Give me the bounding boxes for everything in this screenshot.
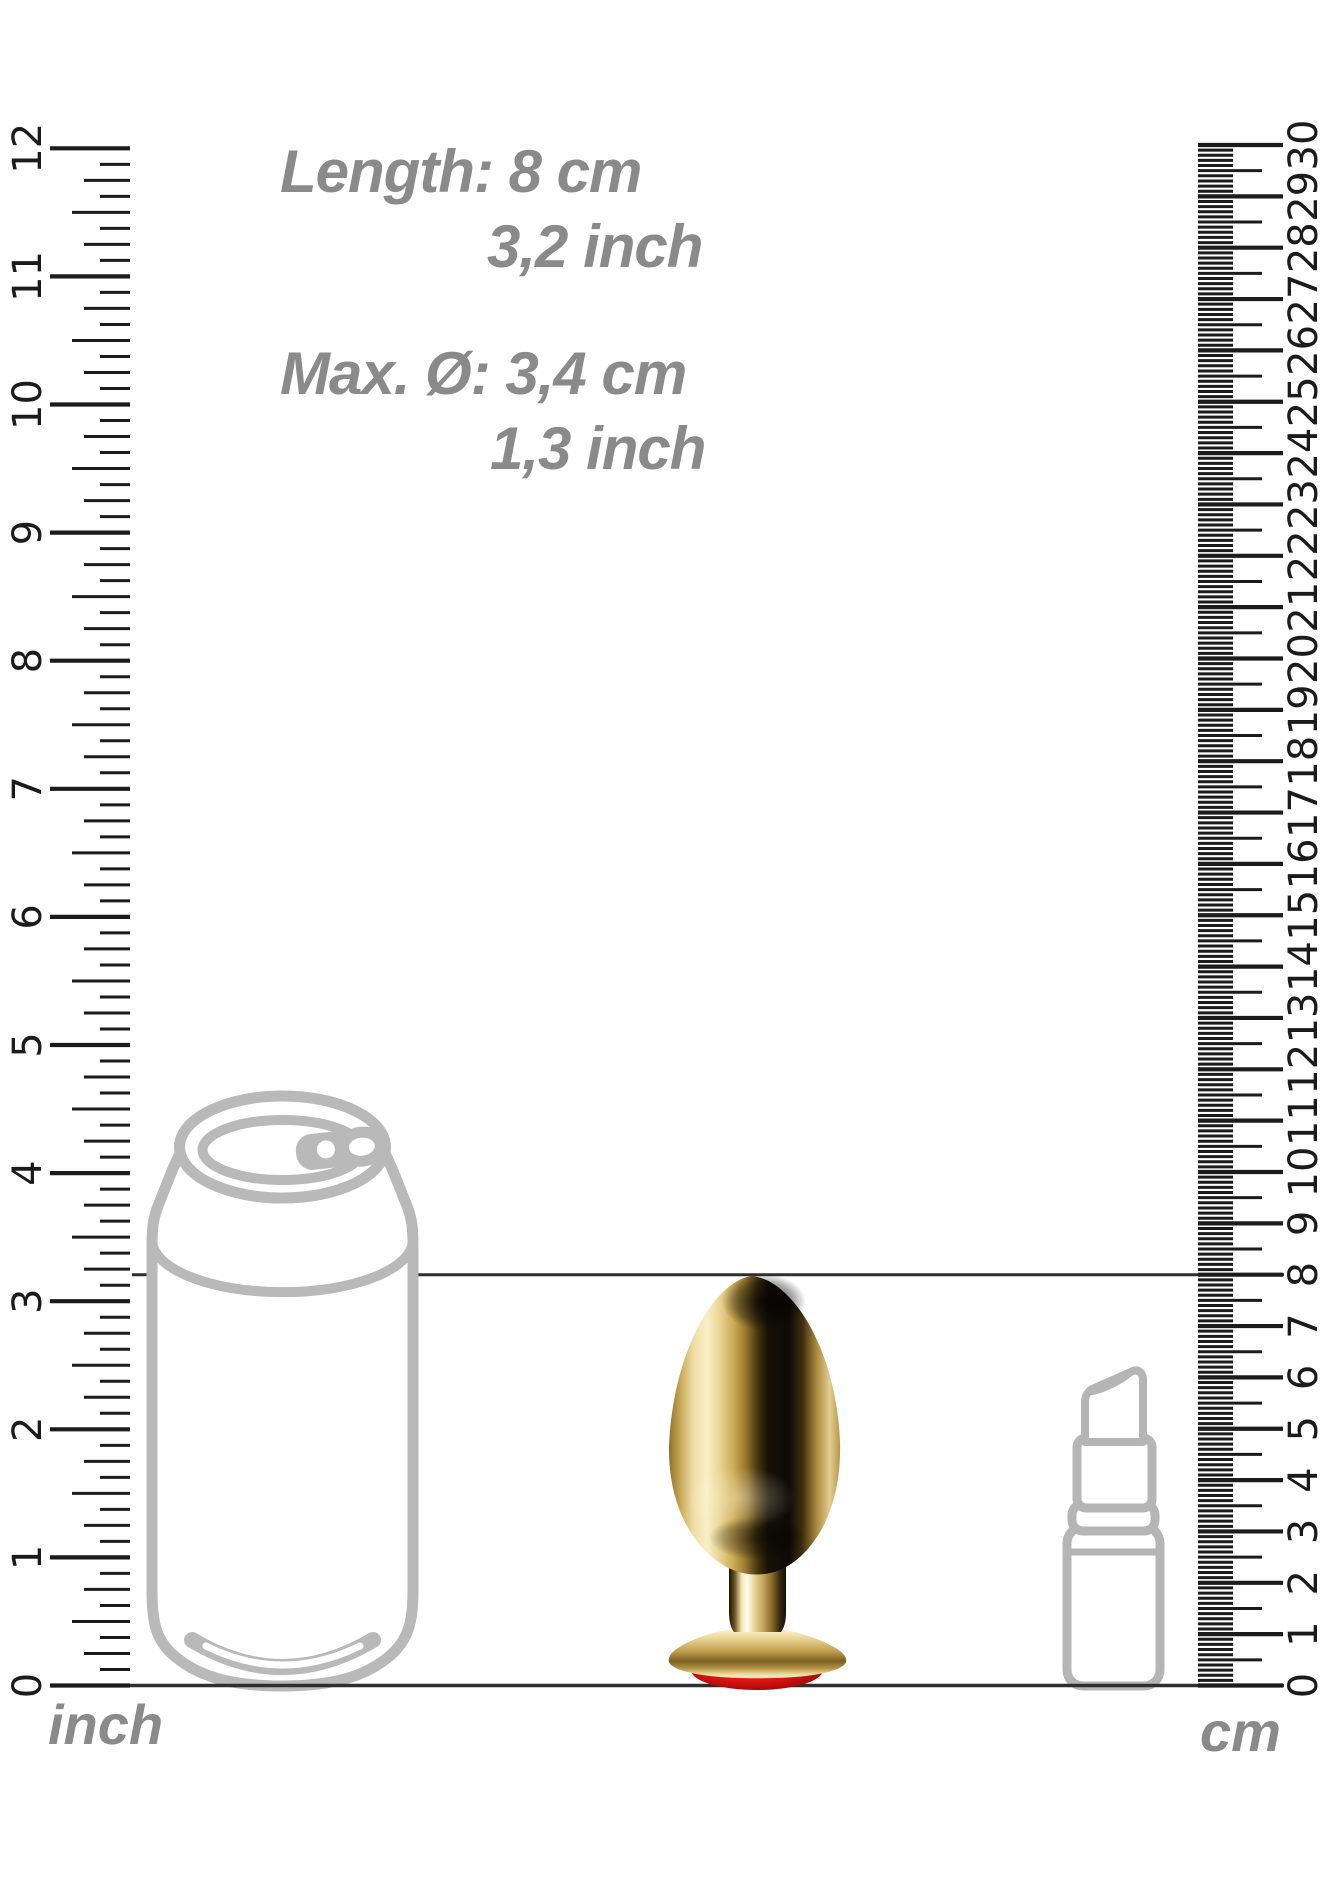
ruler-tick-label: 4 — [5, 1160, 51, 1185]
ruler-tick-label: 22 — [1281, 530, 1327, 581]
ruler-tick-label: 11 — [1281, 1095, 1327, 1146]
ruler-tick-label: 13 — [1281, 992, 1327, 1043]
ruler-tick-label: 1 — [1281, 1621, 1327, 1646]
diameter-imperial-label: 1,3 inch — [490, 417, 705, 480]
ruler-tick-label: 27 — [1281, 274, 1327, 325]
ruler-tick-label: 19 — [1281, 684, 1327, 735]
lipstick-drawing — [1067, 1370, 1160, 1686]
ruler-tick-label: 10 — [5, 379, 51, 430]
ruler-tick-label: 8 — [5, 648, 51, 673]
ruler-tick-label: 5 — [1281, 1416, 1327, 1441]
ruler-tick-label: 17 — [1281, 787, 1327, 838]
ruler-tick-label: 6 — [5, 904, 51, 929]
ruler-tick-label: 9 — [1281, 1211, 1327, 1236]
length-metric-label: Length: 8 cm — [280, 140, 641, 203]
ruler-tick-label: 29 — [1281, 171, 1327, 222]
ruler-tick-label: 30 — [1281, 120, 1327, 171]
ruler-tick-label: 14 — [1281, 941, 1327, 992]
ruler-tick-label: 18 — [1281, 736, 1327, 787]
ruler-tick-label: 3 — [1281, 1519, 1327, 1544]
ruler-tick-label: 15 — [1281, 890, 1327, 941]
ruler-tick-label: 26 — [1281, 325, 1327, 376]
ruler-tick-label: 7 — [1281, 1313, 1327, 1338]
can-body — [152, 1150, 413, 1686]
ruler-tick-label: 25 — [1281, 376, 1327, 427]
ruler-tick-label: 12 — [1281, 1044, 1327, 1095]
ruler-tick-label: 21 — [1281, 582, 1327, 633]
cm-ruler: 0123456789101112131415161718192021222324… — [1198, 120, 1327, 1699]
ruler-tick-label: 24 — [1281, 428, 1327, 479]
ruler-tick-label: 2 — [5, 1417, 51, 1442]
ruler-tick-label: 28 — [1281, 222, 1327, 273]
plug-tip-reflection — [722, 1274, 806, 1330]
ruler-tick-label: 4 — [1281, 1467, 1327, 1492]
ruler-tick-label: 10 — [1281, 1147, 1327, 1198]
ruler-tick-label: 7 — [5, 776, 51, 801]
ruler-tick-label: 6 — [1281, 1365, 1327, 1390]
inch-unit-label: inch — [48, 1697, 163, 1753]
ruler-tick-label: 3 — [5, 1288, 51, 1313]
size-chart-canvas: 0123456789101112 01234567891011121314151… — [0, 0, 1338, 1900]
ruler-tick-label: 20 — [1281, 633, 1327, 684]
cm-unit-label: cm — [1200, 1704, 1281, 1760]
ruler-tick-label: 9 — [5, 520, 51, 545]
ruler-tick-label: 5 — [5, 1032, 51, 1057]
inch-ruler: 0123456789101112 — [5, 123, 130, 1698]
soda-can-drawing — [152, 1096, 413, 1686]
ruler-tick-label: 1 — [5, 1545, 51, 1570]
ruler-tick-label: 12 — [5, 123, 51, 174]
plug-lower-highlight — [685, 1466, 795, 1530]
butt-plug-product — [669, 1274, 846, 1690]
ruler-tick-label: 8 — [1281, 1262, 1327, 1287]
ruler-tick-label: 11 — [5, 251, 51, 302]
diameter-metric-label: Max. Ø: 3,4 cm — [280, 342, 686, 405]
ruler-tick-label: 16 — [1281, 838, 1327, 889]
ruler-tick-label: 0 — [5, 1673, 51, 1698]
ruler-tick-label: 23 — [1281, 479, 1327, 530]
lipstick-inner-tube — [1077, 1438, 1152, 1508]
size-chart: 0123456789101112 01234567891011121314151… — [0, 0, 1338, 1900]
length-imperial-label: 3,2 inch — [487, 215, 702, 278]
ruler-tick-label: 0 — [1281, 1673, 1327, 1698]
plug-base — [669, 1629, 846, 1678]
ruler-tick-label: 2 — [1281, 1570, 1327, 1595]
